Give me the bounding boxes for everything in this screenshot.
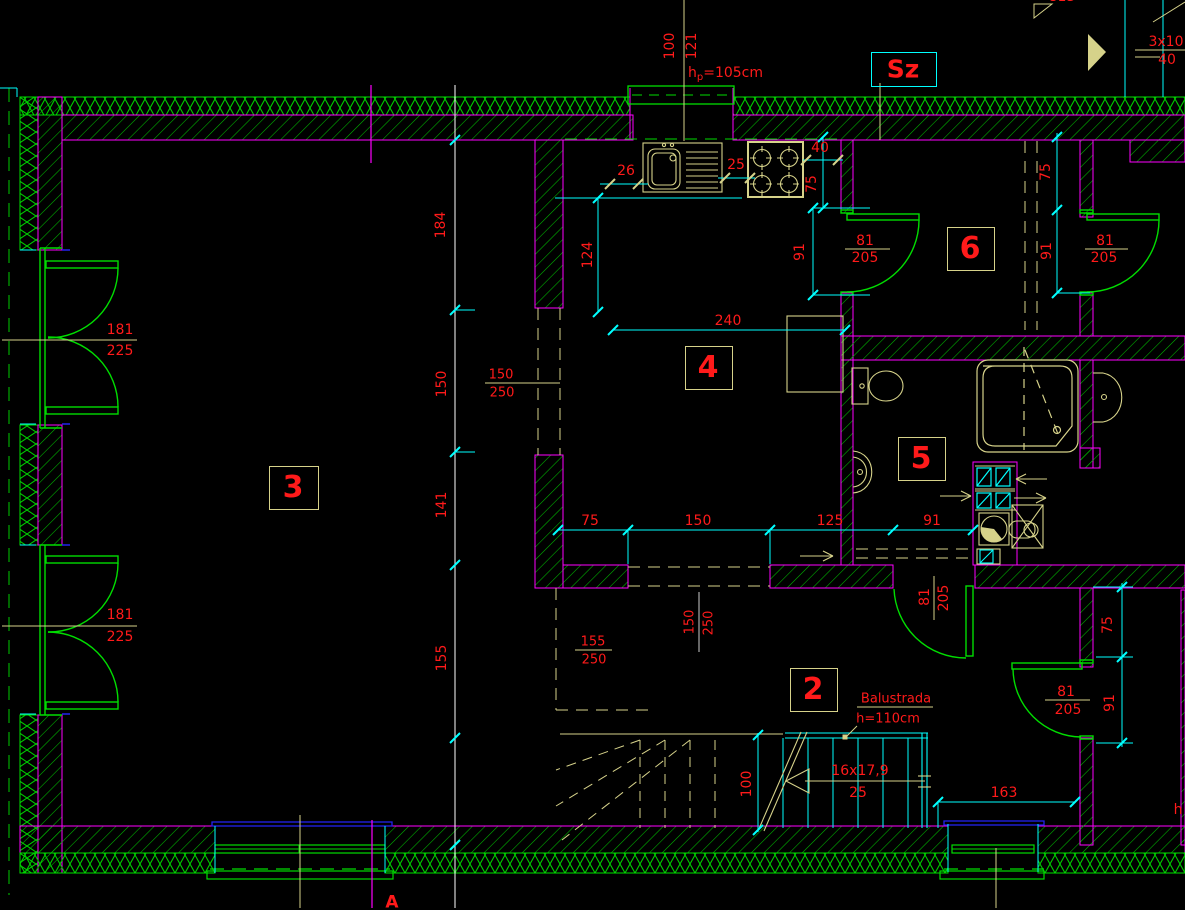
dim-kitchen-75: 75 [805, 175, 819, 193]
d6r-w: 81 [1096, 234, 1114, 248]
room3-number: 3 [283, 473, 304, 503]
washbasin-right [1093, 373, 1122, 422]
lintel-vert-h: 250 [703, 611, 716, 636]
room4-number: 4 [698, 353, 719, 383]
dim-kitchen-25: 25 [727, 158, 745, 172]
d2-h: 205 [937, 585, 951, 612]
lintel-vert-w: 150 [684, 610, 697, 635]
dim-room4-124: 124 [581, 242, 595, 269]
dim-room6-91: 91 [1040, 242, 1054, 260]
kitchen-sink [648, 143, 718, 189]
sz-marker-label: Sz [887, 57, 920, 82]
kitchen-window [628, 86, 734, 104]
lintel-low-h: 250 [582, 654, 607, 667]
room4-cabinet [787, 316, 843, 392]
window-height-note: hp=105cm [688, 66, 763, 83]
washbasin-left [853, 451, 872, 493]
roof-note-bottom: 40 [1158, 53, 1176, 67]
balcony-door-1 [40, 248, 118, 428]
kitchen-stove [748, 142, 803, 197]
stair-formula: 16x17,9 [831, 764, 888, 778]
dim-mid-75: 75 [581, 514, 599, 528]
dim-left-150: 150 [435, 371, 449, 398]
balcony2-h: 225 [107, 630, 134, 644]
toilet [852, 368, 903, 404]
dim-mid-150: 150 [685, 514, 712, 528]
dim-top-121: 121 [685, 33, 699, 60]
dim-left-141: 141 [435, 492, 449, 519]
boiler [977, 505, 1043, 564]
clipped-top-dim: 813 [1049, 0, 1076, 4]
d6l-h: 205 [852, 251, 879, 265]
cad-floorplan-canvas[interactable]: 3 4 5 6 2 Sz 100 121 hp=105cm 3x10 40 81… [0, 0, 1185, 910]
dim-room4-91: 91 [793, 243, 807, 261]
plan-linework [0, 0, 1185, 910]
dim-room6-75: 75 [1039, 163, 1053, 181]
dim-mid-91: 91 [923, 514, 941, 528]
shower [977, 347, 1078, 452]
dim-corridor-91: 91 [1103, 694, 1117, 712]
d6r-h: 205 [1091, 251, 1118, 265]
stair-treads-upper [783, 738, 908, 828]
dim-corridor-75: 75 [1101, 616, 1115, 634]
stair-treads-lower [556, 740, 715, 840]
roof-note-top: 3x10 [1148, 35, 1183, 49]
dim-kitchen-40: 40 [811, 141, 829, 155]
d2-w: 81 [918, 588, 932, 606]
dim-stair-100: 100 [740, 771, 754, 798]
label-fraction-bars [2, 249, 1128, 781]
balcony2-w: 181 [107, 608, 134, 622]
lintel-mid-h: 250 [490, 387, 515, 400]
room5-number: 5 [911, 444, 932, 474]
clipped-right-note: h [1174, 803, 1183, 817]
dim-163: 163 [991, 786, 1018, 800]
balcony1-w: 181 [107, 323, 134, 337]
dbr-w: 81 [1057, 685, 1075, 699]
balustrade-label-1: Balustrada [861, 693, 931, 706]
balustrade-label-2: h=110cm [856, 713, 920, 726]
d6l-w: 81 [856, 234, 874, 248]
dbr-h: 205 [1055, 703, 1082, 717]
room2-number: 2 [803, 675, 824, 705]
section-a-label: A [385, 895, 398, 910]
dim-room4-240: 240 [715, 314, 742, 328]
dim-left-155: 155 [435, 645, 449, 672]
interior-walls [535, 88, 1185, 845]
stair-riser: 25 [849, 786, 867, 800]
lintel-low-w: 155 [581, 636, 606, 649]
bottom-window-2 [940, 821, 1044, 879]
balcony1-h: 225 [107, 344, 134, 358]
dim-kitchen-26: 26 [617, 164, 635, 178]
room6-number: 6 [960, 234, 981, 264]
dim-top-100: 100 [663, 33, 677, 60]
lintel-mid-w: 150 [489, 369, 514, 382]
dim-left-184: 184 [434, 212, 448, 239]
dim-mid-125: 125 [817, 514, 844, 528]
